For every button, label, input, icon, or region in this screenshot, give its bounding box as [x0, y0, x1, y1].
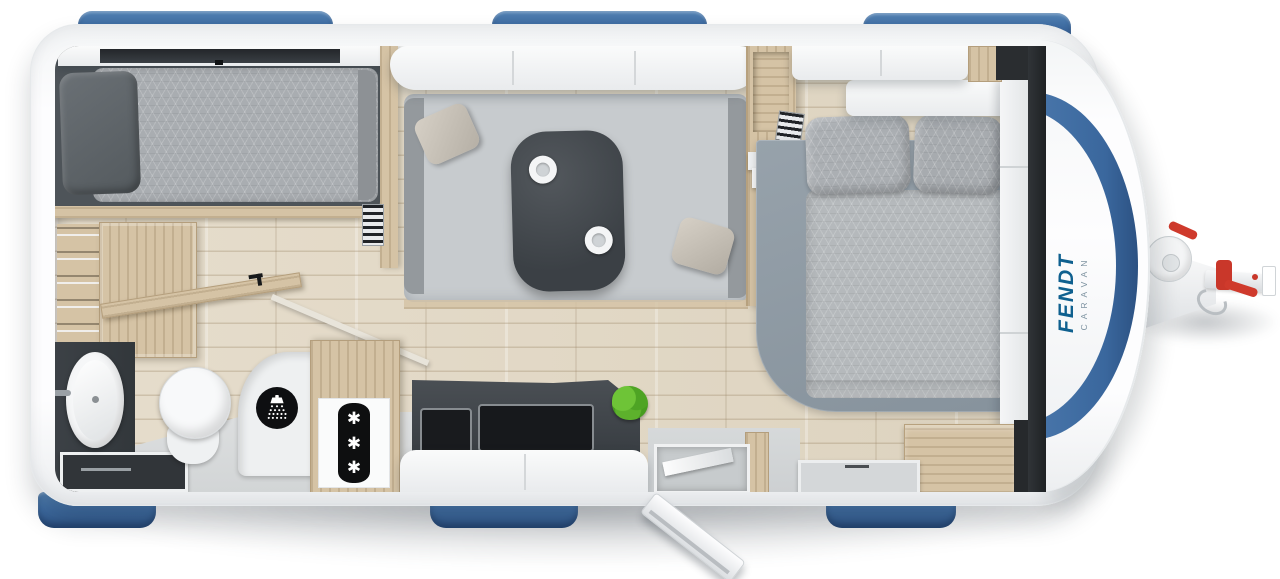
blind-handle	[215, 60, 223, 65]
cooktop-lid-small	[420, 408, 472, 454]
tv-panel	[996, 46, 1028, 80]
french-bed-pillow-right	[913, 114, 1004, 195]
washbasin-sink	[66, 352, 124, 448]
cup	[529, 155, 558, 184]
heater-fins-rear	[362, 204, 384, 246]
jockey-wheel-crank	[1162, 254, 1180, 272]
hatch-handle	[845, 465, 869, 468]
front-overhead-locker	[792, 46, 968, 80]
fridge-snowflake-icon: ✱ ✱ ✱	[338, 403, 370, 483]
bed-foot-chest	[904, 424, 1016, 492]
duvet-fold	[806, 380, 1008, 398]
kitchen-front	[400, 450, 648, 492]
brand-sub-name: CARAVAN	[1080, 256, 1089, 331]
interior-floor: ✱ ✱ ✱	[55, 46, 1046, 492]
locker-divider	[512, 51, 514, 85]
rear-bed-blanket-fold	[358, 70, 376, 200]
salad-plant	[612, 386, 648, 420]
entry-step-tray	[654, 444, 750, 492]
shower-badge	[256, 387, 298, 429]
snowflake-glyph: ✱	[347, 459, 361, 476]
tray-lid	[662, 448, 733, 476]
caravan-floorplan: ✱ ✱ ✱	[0, 0, 1280, 579]
cup	[584, 226, 613, 255]
snowflake-glyph: ✱	[347, 435, 361, 452]
rear-bed-pillow	[59, 71, 141, 196]
dinette-overhead-locker	[390, 46, 758, 90]
sink-faucet	[55, 390, 71, 396]
locker-divider	[880, 50, 882, 76]
kitchen-front-divider	[524, 454, 526, 490]
french-bed-pillow-left	[805, 114, 912, 196]
floor-hatch	[798, 460, 920, 492]
dinette-table	[510, 130, 626, 293]
shower-head-icon	[262, 393, 292, 423]
fridge-panel: ✱ ✱ ✱	[318, 398, 390, 488]
dinette-base-trim	[404, 300, 748, 309]
toilet-bowl	[159, 367, 231, 439]
locker-divider	[634, 51, 636, 85]
wardrobe-wire-shelves	[57, 224, 99, 356]
coupling-red-dot	[1252, 274, 1258, 280]
brand-lettering: FENDT CARAVAN	[1044, 233, 1100, 353]
coupling-end-plate	[1262, 266, 1276, 296]
hatch-handle	[81, 468, 131, 471]
sink-drain	[92, 396, 99, 403]
snowflake-glyph: ✱	[347, 410, 361, 427]
cooktop-lid-large	[478, 404, 594, 452]
vanity-hatch	[60, 452, 188, 492]
sofa-back-right	[728, 98, 748, 298]
brand-name: FENDT	[1056, 253, 1077, 333]
french-bed-duvet	[806, 190, 1008, 398]
bed-partition-shelf	[55, 206, 362, 218]
